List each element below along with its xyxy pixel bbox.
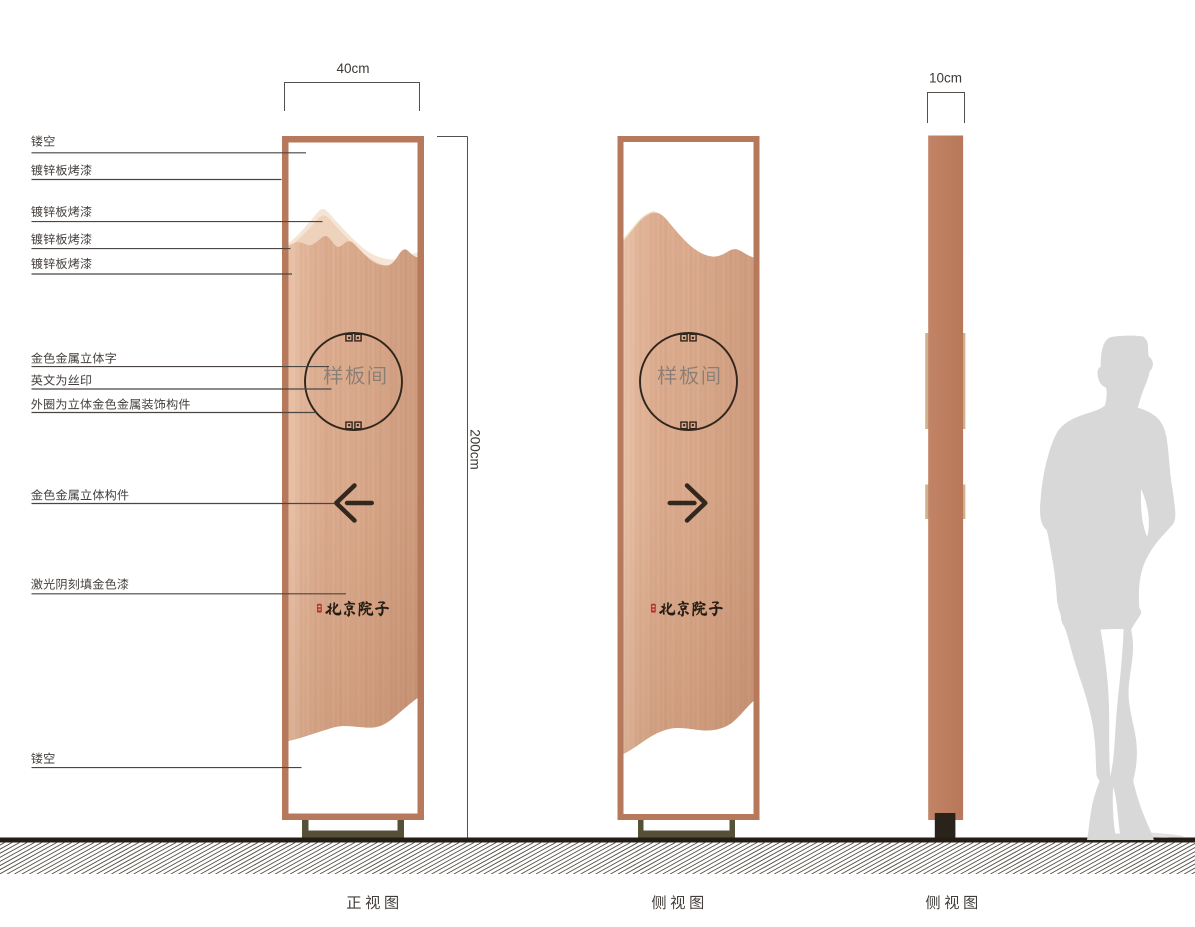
svg-text:BEIJING COURTYARD MODEL ROOM: BEIJING COURTYARD MODEL ROOM (323, 387, 386, 392)
svg-text:40cm: 40cm (336, 61, 369, 76)
svg-text:COURTYARD HOUSE: COURTYARD HOUSE (669, 393, 709, 397)
svg-text:10cm: 10cm (929, 71, 962, 86)
svg-text:BEIJING COURTYARD MODEL ROOM: BEIJING COURTYARD MODEL ROOM (657, 387, 720, 392)
svg-text:200cm: 200cm (468, 429, 483, 470)
svg-text:COURTYARD HOUSE: COURTYARD HOUSE (335, 393, 375, 397)
